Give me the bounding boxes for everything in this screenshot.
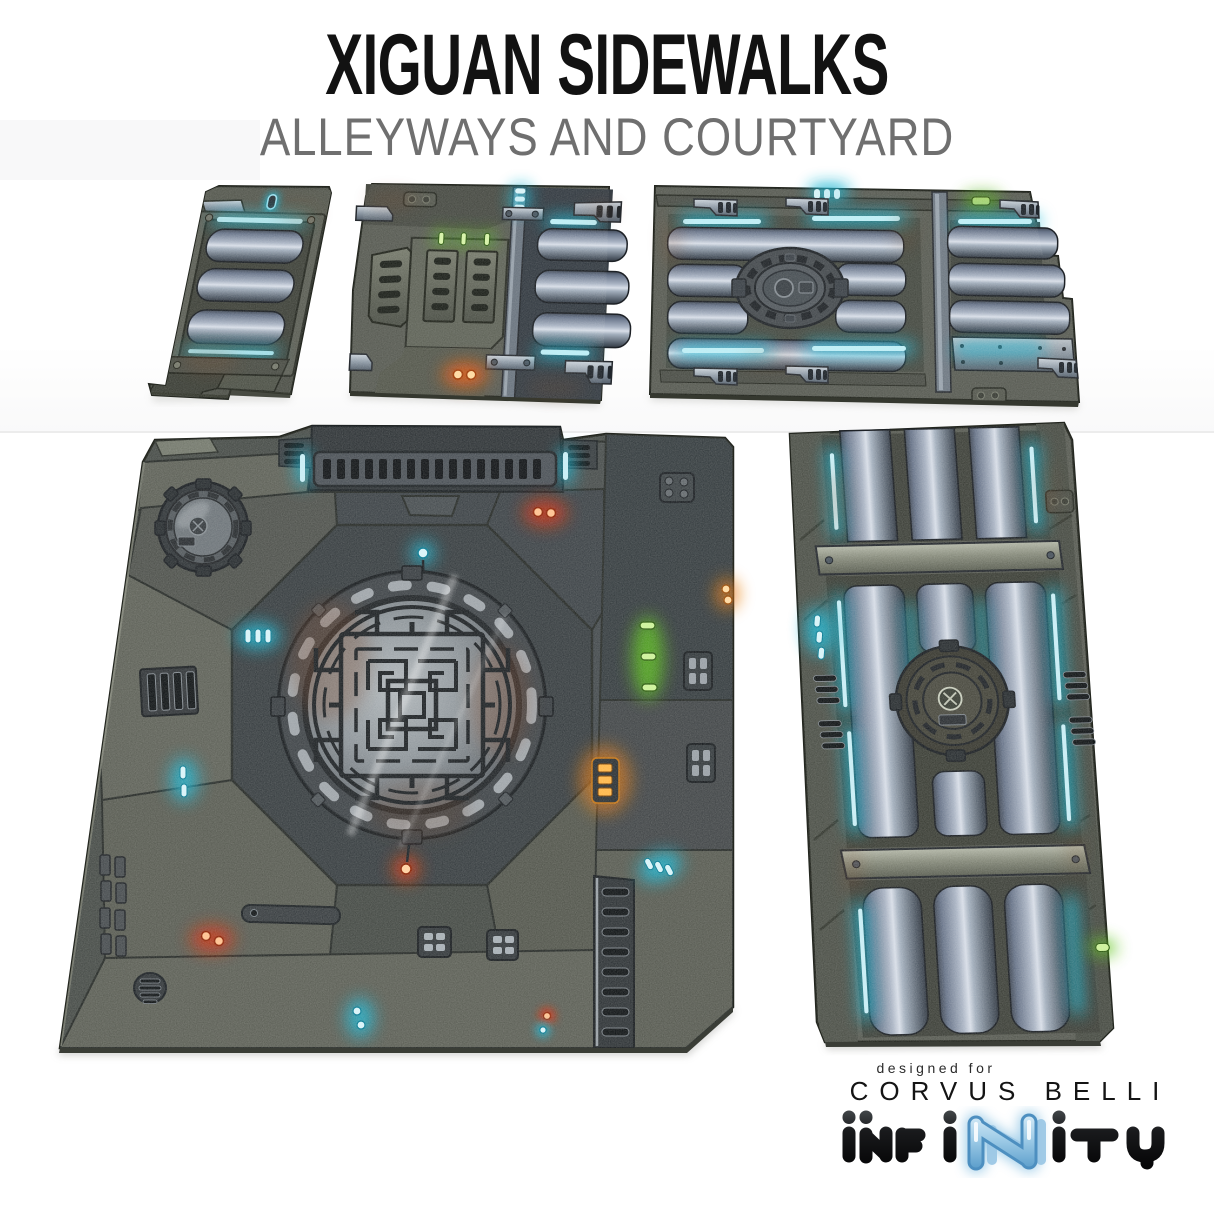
- svg-text:designed for: designed for: [876, 1060, 995, 1076]
- svg-text:CORVUS BELLI: CORVUS BELLI: [850, 1076, 1171, 1106]
